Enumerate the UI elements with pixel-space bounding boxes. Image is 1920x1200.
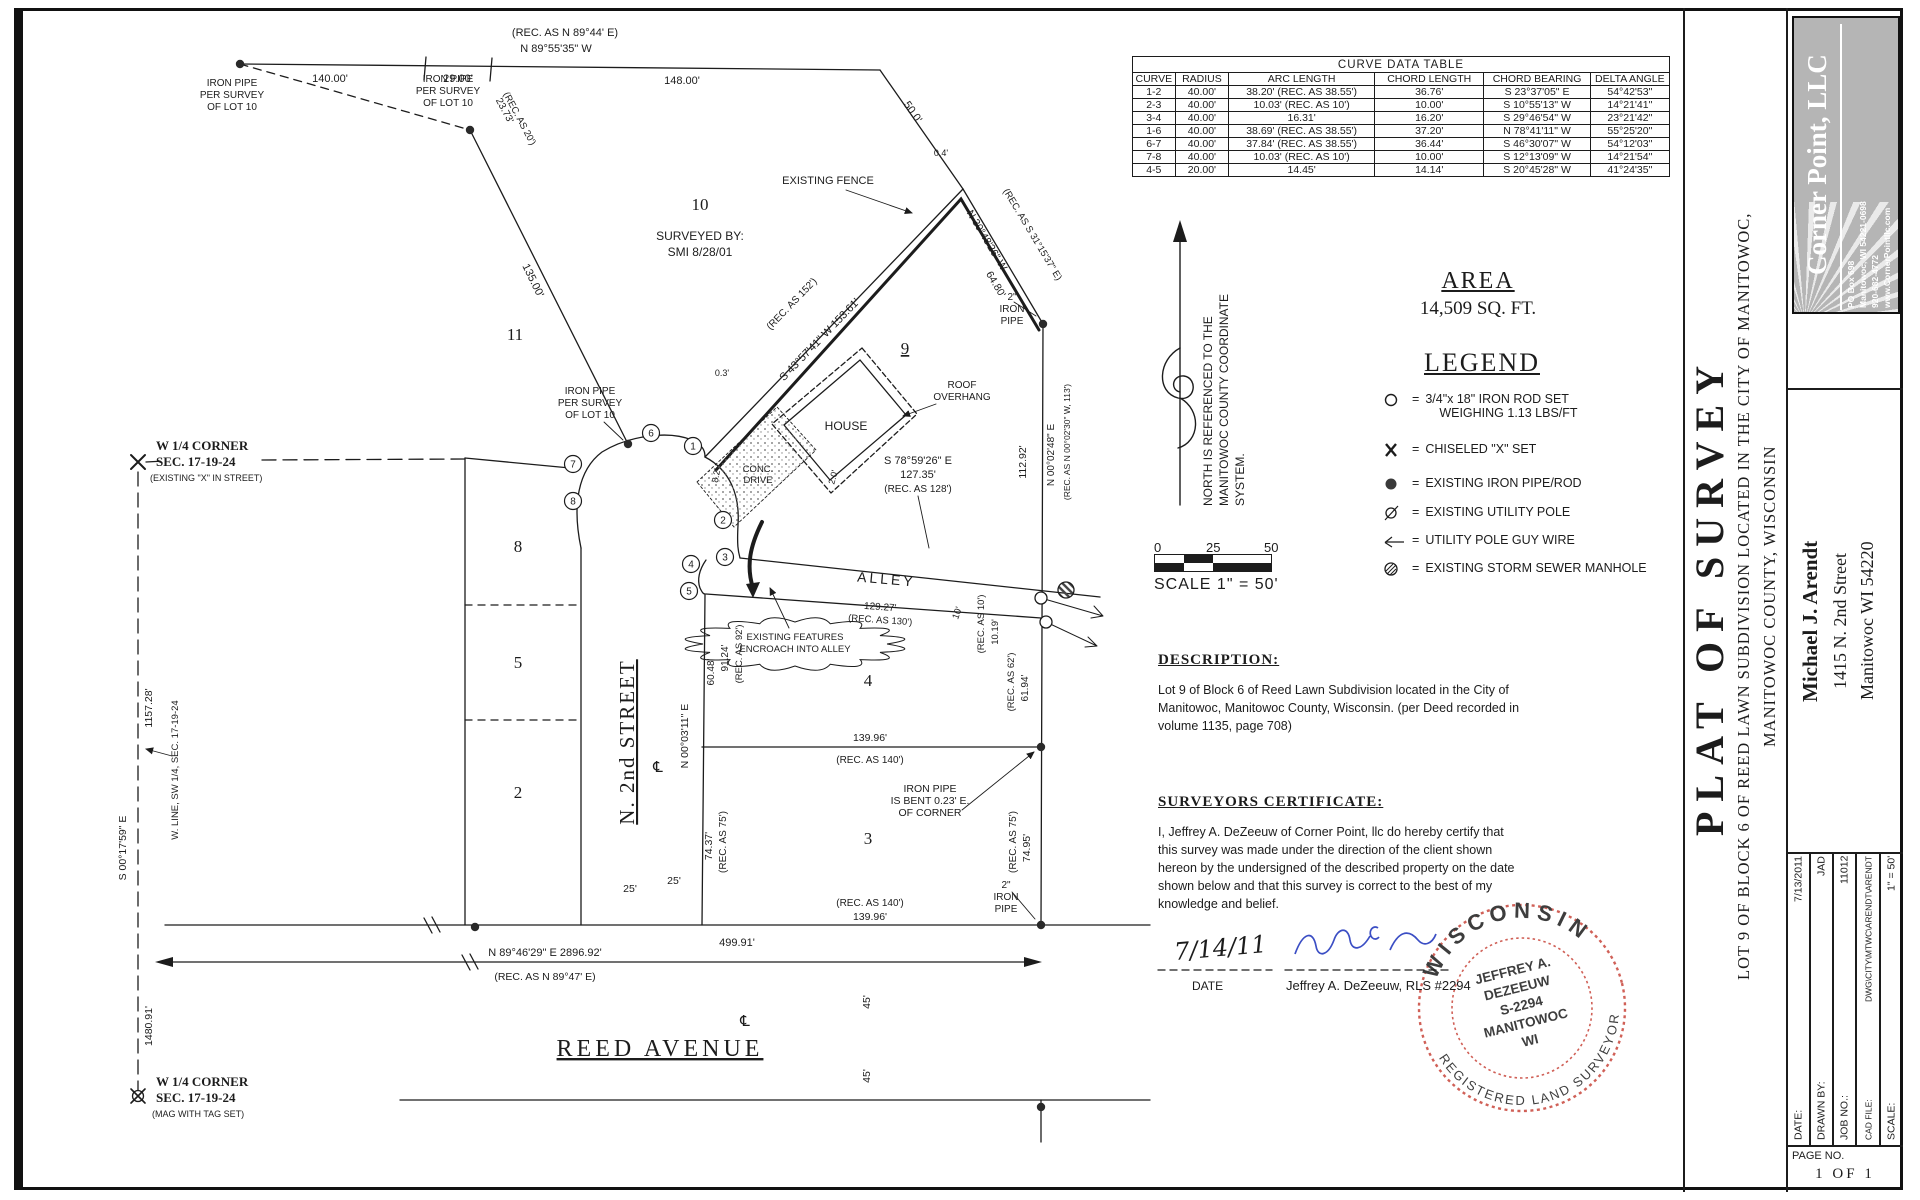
legend-label: UTILITY POLE GUY WIRE (1425, 533, 1575, 547)
text-line: Lot 9 of Block 6 of Reed Lawn Subdivisio… (1158, 681, 1519, 699)
iron-pipe-dot (236, 60, 244, 68)
drawing-label: (REC. AS N 00°02'30" W, 113') (1062, 384, 1072, 500)
legend-label: EXISTING IRON PIPE/ROD (1425, 476, 1581, 490)
drawing-label: Jeffrey A. DeZeeuw, RLS #2294 (1286, 978, 1471, 993)
equals: = (1412, 561, 1419, 575)
iron-pipe-dot (1039, 320, 1047, 328)
plat-subtitle-1: LOT 9 OF BLOCK 6 OF REED LAWN SUBDIVISIO… (1734, 8, 1754, 1184)
curve-point-number: 7 (570, 460, 576, 471)
iron-pipe-dot (1037, 921, 1045, 929)
drawing-label: 1480.91' (143, 1006, 155, 1046)
drawing-label: SMI 8/28/01 (668, 245, 733, 259)
curve-table-row: 2-340.00'10.03' (REC. AS 10')10.00'S 10°… (1133, 99, 1670, 112)
info-drawn-by: DRAWN BY:JAD (1812, 856, 1831, 1140)
drawing-label: N 89°46'29" E 2896.92' (488, 947, 601, 959)
equals: = (1412, 442, 1419, 456)
encroach-arrow (750, 522, 762, 588)
survey-drawing: WISCONSIN REGISTERED LAND SURVEYOR JEFFR… (0, 0, 1920, 1200)
drawing-label: N 00°02'48" E (1046, 424, 1057, 487)
curve-table-cell: 54°12'03" (1590, 138, 1669, 151)
north-arrow-ornament (1162, 348, 1195, 448)
info-scale: SCALE:1" = 50' (1882, 856, 1901, 1140)
info-value: JAD (1816, 856, 1828, 876)
drawing-label: PER SURVEY (558, 398, 623, 409)
drawing-label: 10.19' (990, 619, 1001, 645)
legend-label: CHISELED "X" SET (1425, 442, 1536, 456)
curve-table-cell: 38.69' (REC. AS 38.55') (1229, 125, 1375, 138)
drawing-label: 148.00' (664, 75, 700, 87)
drawing-label: (REC. AS 130') (848, 613, 913, 628)
drawing-label: (REC. AS 140') (836, 755, 904, 766)
curve-point-number: 1 (690, 442, 696, 453)
drawing-label: OF LOT 10 (207, 102, 257, 113)
drawing-label: N. 2nd STREET (615, 659, 639, 824)
curve-table-cell: 37.84' (REC. AS 38.55') (1229, 138, 1375, 151)
curve-table-cell: 40.00' (1175, 86, 1229, 99)
surveyor-signature (1295, 927, 1436, 954)
bent-pipe-leader (962, 752, 1034, 810)
overhang-leader (903, 404, 936, 416)
drawing-label: 91.24' (720, 644, 731, 671)
band-hdivider-3 (1786, 1145, 1903, 1147)
page-no-value: 1 OF 1 (1792, 1166, 1898, 1183)
drawing-label: SURVEYED BY: (656, 229, 744, 243)
text-line: knowledge and belief. (1158, 895, 1515, 913)
drawing-label: 11 (507, 325, 523, 344)
curve-table-cell: 37.20' (1375, 125, 1484, 138)
drawing-label: IS BENT 0.23' E. (891, 795, 970, 807)
equals: = (1412, 476, 1419, 490)
drawing-label: MANITOWOC COUNTY COORDINATE (1217, 294, 1231, 506)
curve-table-cell: 40.00' (1175, 138, 1229, 151)
info-divider (1809, 852, 1811, 1145)
drawing-label: IRON PIPE (423, 74, 474, 85)
curve-table-cell: 10.00' (1375, 151, 1484, 164)
band-hdivider-2 (1786, 852, 1903, 854)
drawing-label: (REC. AS 140') (836, 898, 904, 909)
curve-table-cell: 7-8 (1133, 151, 1176, 164)
company-addr-1: PO Box 698 (1846, 22, 1856, 308)
guy-wire-1 (1041, 598, 1103, 618)
drawing-label: (REC. AS 10') (976, 595, 987, 654)
drawing-label: 139.96' (853, 732, 887, 744)
curve-table-row: 4-520.00'14.45'14.14'S 20°45'28" W41°24'… (1133, 164, 1670, 177)
page-no-label: PAGE NO. (1792, 1150, 1844, 1162)
drawing-label: ROOF (948, 380, 977, 391)
curve-table-cell: S 23°37'05" E (1484, 86, 1590, 99)
client-name: Michael J. Arendt (1798, 392, 1823, 850)
north-arrow-head (1173, 220, 1187, 242)
legend-item: = UTILITY POLE GUY WIRE (1382, 533, 1575, 549)
legend-item: = CHISELED "X" SET (1382, 442, 1536, 458)
scale-tick: 25 (1206, 540, 1220, 555)
plat-of-survey-page: WISCONSIN REGISTERED LAND SURVEYOR JEFFR… (0, 0, 1920, 1200)
curve-table-cell: 40.00' (1175, 112, 1229, 125)
curve-table-cell: 36.76' (1375, 86, 1484, 99)
drawing-label: NORTH IS REFERENCED TO THE (1201, 316, 1215, 506)
curve-table-title: CURVE DATA TABLE (1133, 57, 1670, 73)
drawing-label: 2 (514, 783, 523, 802)
curve-point-number: 6 (648, 429, 654, 440)
curve-table-cell: N 78°41'11" W (1484, 125, 1590, 138)
scale-caption: SCALE 1" = 50' (1154, 576, 1284, 594)
drawing-label: N 00°03'11" E (679, 704, 691, 769)
drawing-label: REED AVENUE (557, 1036, 764, 1062)
curve-table-cell: 40.00' (1175, 125, 1229, 138)
drawing-label: 10' (950, 605, 965, 621)
curve-data-table: CURVE DATA TABLE CURVERADIUSARC LENGTHCH… (1132, 56, 1670, 177)
ne-diagonal-top (880, 70, 963, 189)
cloud-leader (770, 588, 789, 628)
scale-tick: 0 (1154, 540, 1161, 555)
drawing-label: 135.00' (519, 262, 545, 299)
equals: = (1412, 533, 1419, 547)
text-line: volume 1135, page 708) (1158, 717, 1519, 735)
drawing-label: HOUSE (825, 419, 868, 433)
dim-arrow-left (155, 957, 173, 967)
drawing-label: S 78°59'26" E (884, 455, 952, 467)
info-label: SCALE: (1886, 1103, 1898, 1140)
curve-table-cell: S 20°45'28" W (1484, 164, 1590, 177)
info-label: DATE: (1793, 1110, 1805, 1140)
guy-wire-icon (1382, 533, 1406, 549)
drawing-label: 3 (864, 829, 873, 848)
curve-point-number: 3 (722, 553, 728, 564)
company-website: www.CornerPointllc.com (1882, 22, 1892, 308)
curve-table-cell: S 12°13'09" W (1484, 151, 1590, 164)
drawing-label: ℄ (652, 759, 663, 776)
drawing-label: (REC. AS 152') (765, 276, 820, 332)
drawing-label: 129.27' (864, 601, 897, 614)
drawing-label: OF CORNER (899, 807, 962, 819)
drawing-label: OF LOT 10 (423, 98, 473, 109)
curve-table-cell: 10.03' (REC. AS 10') (1229, 99, 1375, 112)
area-heading: AREA (1418, 268, 1538, 295)
drawing-label: 127.35' (900, 469, 936, 481)
drawing-label: SEC. 17-19-24 (156, 1090, 236, 1105)
text-line: this survey was made under the direction… (1158, 841, 1515, 859)
drawing-label: 60.48' (706, 658, 717, 685)
drawing-label: 499.91' (719, 937, 755, 949)
curve-table-cell: 4-5 (1133, 164, 1176, 177)
info-divider (1832, 852, 1834, 1145)
info-job-no: JOB NO.:11012 (1835, 856, 1854, 1140)
drawing-label: 45' (861, 995, 873, 1009)
drawing-label: IRON (994, 892, 1019, 903)
info-divider (1855, 852, 1857, 1145)
drawing-label: DRIVE (743, 475, 772, 486)
iron-pipe-icon (1382, 476, 1406, 492)
drawing-label: 8 (514, 537, 523, 556)
fence-leader (846, 190, 912, 213)
utility-pole-icon (1382, 505, 1406, 521)
logo-rule (1840, 24, 1842, 310)
drawing-label: IRON (1000, 304, 1025, 315)
curve-table-cell: S 46°30'07" W (1484, 138, 1590, 151)
utility-pole-symbol (1040, 616, 1052, 628)
drawing-label: 50.0' (901, 99, 924, 125)
drawing-label: (REC. AS N 89°47' E) (494, 971, 595, 983)
description-heading: DESCRIPTION: (1158, 652, 1519, 669)
drawing-label: ALLEY (857, 568, 917, 589)
drawing-label: 45' (861, 1069, 873, 1083)
dim-arrow-right (1024, 957, 1042, 967)
equals: = (1412, 505, 1419, 519)
drawing-label: 4 (864, 671, 873, 690)
band-divider-2 (1786, 8, 1788, 1192)
drawing-label: 9 (901, 339, 910, 358)
curve-table-header: DELTA ANGLE (1590, 73, 1669, 86)
info-value: DWG\CITY\MTWC\ARENDT\ARENDT (1864, 856, 1874, 1002)
text-line: I, Jeffrey A. DeZeeuw of Corner Point, l… (1158, 823, 1515, 841)
drawing-label: (REC. AS N 89°44' E) (512, 27, 618, 39)
utility-pole-symbol (1035, 592, 1047, 604)
drawing-label: 2" (1007, 292, 1017, 303)
drawing-label: IRON PIPE (903, 783, 956, 795)
drawing-label: W 1/4 CORNER (156, 438, 249, 453)
curve-table-header: CHORD BEARING (1484, 73, 1590, 86)
drawing-label: 61.94' (1020, 674, 1031, 701)
drawing-label: 112.92' (1017, 445, 1029, 478)
curve-table-cell: 6-7 (1133, 138, 1176, 151)
curve-table-cell: 41°24'35" (1590, 164, 1669, 177)
drawing-label: 25' (623, 883, 637, 895)
curve-table-cell: 38.20' (REC. AS 38.55') (1229, 86, 1375, 99)
drawing-label: EXISTING FENCE (782, 175, 874, 187)
iron-pipe-dot (466, 126, 474, 134)
band-divider-1 (1683, 8, 1685, 1192)
info-label: DRAWN BY: (1816, 1081, 1828, 1140)
curve-table-cell: 1-6 (1133, 125, 1176, 138)
client-address-1: 1415 N. 2nd Street (1830, 392, 1851, 850)
company-phone: 920-682-4772 (1870, 22, 1880, 308)
drawing-label: 7/14/11 (1173, 930, 1268, 966)
drawing-label: N 89°55'35" W (520, 43, 592, 55)
company-addr-2: Manitowoc, WI 54221-0698 (1858, 22, 1868, 308)
storm-manhole-symbol (1058, 582, 1074, 598)
curve-table-row: 7-840.00'10.03' (REC. AS 10')10.00'S 12°… (1133, 151, 1670, 164)
drawing-label: (REC. AS 128') (884, 484, 952, 495)
stamp-center-text: JEFFREY A.DEZEEUWS-2294MANITOWOCWI (1469, 953, 1574, 1058)
band-hdivider-1 (1786, 388, 1903, 390)
curve-table-cell: 36.44' (1375, 138, 1484, 151)
info-label: JOB NO.: (1839, 1095, 1851, 1140)
drawing-label: S 00°17'59" E (117, 816, 129, 881)
chiseled-x-mark (131, 455, 145, 469)
drawing-label: 10 (692, 195, 709, 214)
drawing-label: ℄ (739, 1013, 750, 1030)
drawing-label: CONC. (743, 464, 774, 475)
curve-point-number: 2 (720, 516, 726, 527)
drawing-label: 1157.28' (143, 688, 155, 727)
iron-rod-set-icon (1382, 392, 1406, 408)
north-boundary-line (240, 64, 880, 70)
drawing-label: SEC. 17-19-24 (156, 454, 236, 469)
iron-pipe-dot (471, 923, 479, 931)
drawing-label: W. LINE, SW 1/4, SEC. 17-19-24 (170, 700, 181, 839)
drawing-label: EXISTING FEATURES (747, 632, 844, 643)
client-address-2: Manitowoc WI 54220 (1857, 392, 1878, 850)
certificate-section: SURVEYORS CERTIFICATE: I, Jeffrey A. DeZ… (1158, 794, 1515, 913)
description-section: DESCRIPTION: Lot 9 of Block 6 of Reed La… (1158, 652, 1519, 735)
curve-table-cell: 16.31' (1229, 112, 1375, 125)
drawing-label: 0.4' (934, 148, 949, 158)
drawing-label: (REC. AS 62') (1006, 653, 1017, 712)
info-value: 7/13/2011 (1793, 856, 1805, 902)
curve-table-cell: 20.00' (1175, 164, 1229, 177)
plat-title: PLAT OF SURVEY (1686, 8, 1733, 1184)
certificate-heading: SURVEYORS CERTIFICATE: (1158, 794, 1515, 811)
curve-table-cell: S 10°55'13" W (1484, 99, 1590, 112)
text-line: Manitowoc, Manitowoc County, Wisconsin. … (1158, 699, 1519, 717)
curve-table-cell: S 29°46'54" W (1484, 112, 1590, 125)
curve-table-row: 6-740.00'37.84' (REC. AS 38.55')36.44'S … (1133, 138, 1670, 151)
curve-table-cell: 10.03' (REC. AS 10') (1229, 151, 1375, 164)
drawing-label: 2" (1001, 880, 1011, 891)
drawing-label: OVERHANG (933, 392, 990, 403)
company-name: Corner Point, LLC (1802, 22, 1833, 308)
curve-table-row: 1-640.00'38.69' (REC. AS 38.55')37.20'N … (1133, 125, 1670, 138)
curve-point-number: 8 (570, 497, 576, 508)
drawing-label: 5 (514, 653, 523, 672)
drawing-label: 0.3' (715, 368, 730, 378)
curve-table-cell: 10.00' (1375, 99, 1484, 112)
curve-table-header: CURVE (1133, 73, 1176, 86)
curve-table-cell: 3-4 (1133, 112, 1176, 125)
bulb-pipe-leader (604, 422, 623, 440)
curve-table-row: 1-240.00'38.20' (REC. AS 38.55')36.76'S … (1133, 86, 1670, 99)
drawing-label: DATE (1192, 979, 1223, 993)
legend-item: = EXISTING STORM SEWER MANHOLE (1382, 561, 1647, 577)
scale-bar: 0 25 50 SCALE 1" = 50' (1154, 540, 1284, 594)
legend-label: EXISTING UTILITY POLE (1425, 505, 1570, 519)
curve-table-cell: 40.00' (1175, 151, 1229, 164)
drawing-label: PER SURVEY (416, 86, 481, 97)
encroach-arrow-head (746, 582, 760, 598)
iron-pipe-dot (1037, 743, 1045, 751)
curve-point-number: 5 (686, 587, 692, 598)
equals: = (1412, 392, 1419, 406)
guy-wire-2 (1046, 622, 1097, 647)
scale-tick: 50 (1264, 540, 1278, 555)
curve-table-cell: 16.20' (1375, 112, 1484, 125)
legend-label: 3/4"x 18" IRON ROD SET (1425, 392, 1569, 406)
legend-label-2: WEIGHING 1.13 LBS/FT (1425, 406, 1577, 420)
curve-table-cell: 54°42'53" (1590, 86, 1669, 99)
lot8-top-line (465, 458, 570, 468)
drawing-label: (REC. AS 92') (734, 625, 745, 684)
drawing-label: PIPE (995, 904, 1018, 915)
drawing-label: (REC. AS 75') (1008, 811, 1019, 873)
curve-table-cell: 2-3 (1133, 99, 1176, 112)
drawing-label: ENCROACH INTO ALLEY (739, 644, 851, 655)
alley-dim-leader (918, 496, 929, 548)
info-divider (1879, 852, 1881, 1145)
info-value: 11012 (1839, 856, 1851, 884)
curve-table-cell: 40.00' (1175, 99, 1229, 112)
info-date: DATE:7/13/2011 (1789, 856, 1808, 1140)
drawing-label: N 30°48'26" W (964, 208, 1010, 273)
company-logo-box: Corner Point, LLC PO Box 698 Manitowoc, … (1792, 16, 1900, 314)
iron-pipe-dot (624, 440, 632, 448)
plat-subtitle-2: MANITOWOC COUNTY, WISCONSIN (1760, 8, 1780, 1184)
drawing-label: IRON PIPE (565, 386, 616, 397)
drawing-label: SYSTEM. (1233, 453, 1247, 506)
scale-bar-graphic (1154, 554, 1272, 572)
surveyor-stamp: WISCONSIN REGISTERED LAND SURVEYOR JEFFR… (1395, 876, 1646, 1133)
curve-table-header: CHORD LENGTH (1375, 73, 1484, 86)
drawing-label: 74.95' (1021, 834, 1033, 862)
curve-table-cell: 1-2 (1133, 86, 1176, 99)
chiseled-x-icon (1382, 442, 1406, 458)
curve-table-cell: 14°21'41" (1590, 99, 1669, 112)
alley-north-line (740, 558, 1100, 597)
drawing-label: (EXISTING "X" IN STREET) (150, 473, 262, 483)
drawing-label: PER SURVEY (200, 90, 265, 101)
curve-table-header: RADIUS (1175, 73, 1229, 86)
info-label: CAD FILE: (1864, 1099, 1874, 1140)
curve-table-cell: 55°25'20" (1590, 125, 1669, 138)
drawing-label: 140.00' (312, 73, 348, 85)
legend-item: = EXISTING UTILITY POLE (1382, 505, 1570, 521)
drawing-label: 74.37' (703, 832, 715, 860)
curve-table-cell: 23°21'42" (1590, 112, 1669, 125)
curve-table-header: ARC LENGTH (1229, 73, 1375, 86)
info-cad-file: CAD FILE:DWG\CITY\MTWC\ARENDT\ARENDT (1859, 856, 1878, 1140)
drawing-label: PIPE (1001, 316, 1024, 327)
drawing-label: IRON PIPE (207, 78, 258, 89)
curve-point-number: 4 (688, 560, 694, 571)
drawing-label: OF LOT 10 (565, 410, 615, 421)
iron-pipe-dot (1037, 1103, 1045, 1111)
info-value: 1" = 50' (1886, 856, 1898, 891)
curve-table-row: 3-440.00'16.31'16.20'S 29°46'54" W23°21'… (1133, 112, 1670, 125)
legend-item: = EXISTING IRON PIPE/ROD (1382, 476, 1582, 492)
stamp-line: WI (1520, 1031, 1540, 1050)
drawing-label: W 1/4 CORNER (156, 1074, 249, 1089)
curve-table-cell: 14.14' (1375, 164, 1484, 177)
drawing-label: 139.96' (853, 911, 887, 923)
street-bulb-curve (577, 435, 705, 548)
curve-table-cell: 14°21'54" (1590, 151, 1669, 164)
legend-label: EXISTING STORM SEWER MANHOLE (1425, 561, 1646, 575)
legend-item: = 3/4"x 18" IRON ROD SET WEIGHING 1.13 L… (1382, 392, 1578, 420)
area-value: 14,509 SQ. FT. (1378, 298, 1578, 320)
curve-table-cell: 14.45' (1229, 164, 1375, 177)
drawing-label: (REC. AS 75') (718, 811, 729, 873)
legend-heading: LEGEND (1412, 348, 1552, 378)
manhole-icon (1382, 561, 1406, 577)
west-line-leader (146, 749, 172, 756)
text-line: shown below and that this survey is corr… (1158, 877, 1515, 895)
drawing-label: (MAG WITH TAG SET) (152, 1109, 244, 1119)
drawing-label: 25' (667, 875, 681, 887)
text-line: hereon by the undersigned of the describ… (1158, 859, 1515, 877)
